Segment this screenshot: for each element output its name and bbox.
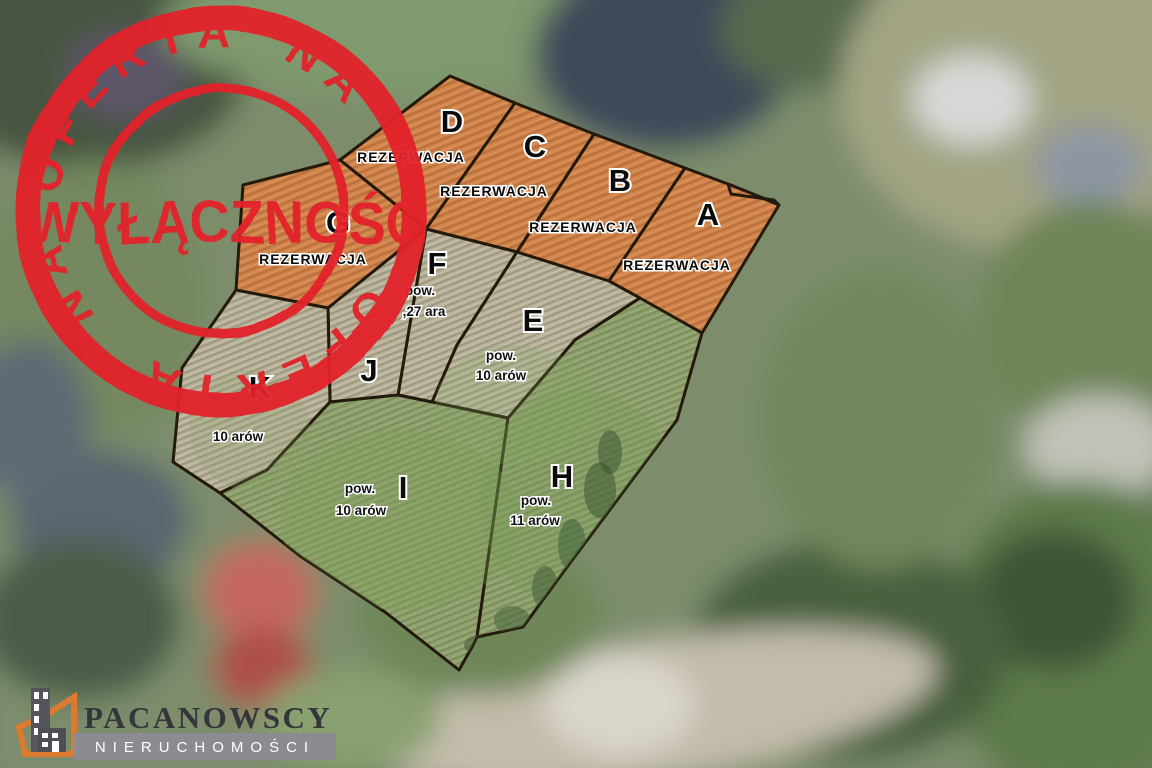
plot-E-area-value: 10 arów [476,368,527,383]
plot-F-area-value: ,27 ara [403,304,446,319]
plot-E-area-label: pow. [486,348,516,363]
plot-C-status: REZERWACJA [440,183,548,199]
plot-H-letter: H [551,459,573,494]
plot-F-letter: F [428,246,447,281]
listing-image: D C B A G F E J K I H REZERWACJA REZERWA… [0,0,1152,768]
plot-H-area-value: 11 arów [510,513,560,528]
agency-name: PACANOWSCY [84,700,332,735]
plot-K-area-value: 10 arów [213,429,264,444]
plot-B-status: REZERWACJA [529,219,637,235]
plot-A-status: REZERWACJA [623,257,731,273]
plot-B-letter: B [609,163,631,198]
plot-I-letter: I [399,470,408,505]
plot-C-letter: C [524,129,546,164]
plot-H-area-label: pow. [521,493,551,508]
plot-I-area-label: pow. [345,481,375,496]
agency-subtitle: NIERUCHOMOŚCI [95,738,315,756]
plot-A-letter: A [697,197,719,232]
plot-I-area-value: 10 arów [336,503,387,518]
plot-D-letter: D [441,104,463,139]
aerial-plot-map: D C B A G F E J K I H REZERWACJA REZERWA… [0,0,1152,768]
plot-E-letter: E [523,303,544,338]
stamp-center-text: WYŁĄCZNOŚĆ [27,190,425,256]
